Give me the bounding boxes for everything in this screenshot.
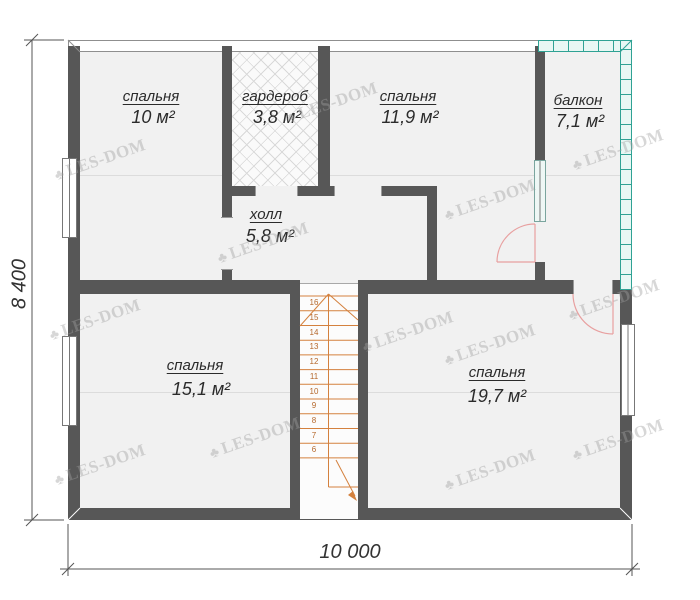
stair-treads: [300, 294, 358, 487]
room-area: 7,1 м²: [556, 111, 604, 132]
corner-bevel-top-left: [68, 40, 80, 52]
stair-direction-arrow: [336, 460, 357, 501]
dimension-height-label: 8 400: [9, 259, 32, 309]
floor-plan: 16 15 14 13 12 11 10 9 8 7 6: [0, 0, 700, 600]
corner-bevel-top-right: [620, 40, 632, 52]
door-arc-bedroom-bottom-right: [573, 294, 613, 334]
room-area: 3,8 м²: [253, 107, 301, 128]
room-area: 10 м²: [131, 107, 174, 128]
room-label: гардероб: [242, 88, 308, 105]
room-area: 19,7 м²: [468, 386, 526, 407]
plan-linework: [0, 0, 700, 600]
room-label: спальня: [380, 88, 437, 105]
room-label: холл: [250, 206, 282, 223]
dimension-width-label: 10 000: [319, 541, 380, 564]
corner-bevel-bottom-left: [68, 508, 80, 520]
dimension-lines: [24, 34, 640, 576]
room-area: 5,8 м²: [246, 226, 294, 247]
room-label: спальня: [123, 88, 180, 105]
room-area: 11,9 м²: [381, 107, 438, 128]
room-label: балкон: [554, 92, 603, 109]
corner-bevel-bottom-right: [620, 508, 632, 520]
door-arc-balcony: [497, 224, 535, 262]
room-area: 15,1 м²: [172, 379, 230, 400]
room-label: спальня: [167, 357, 224, 374]
room-label: спальня: [469, 364, 526, 381]
